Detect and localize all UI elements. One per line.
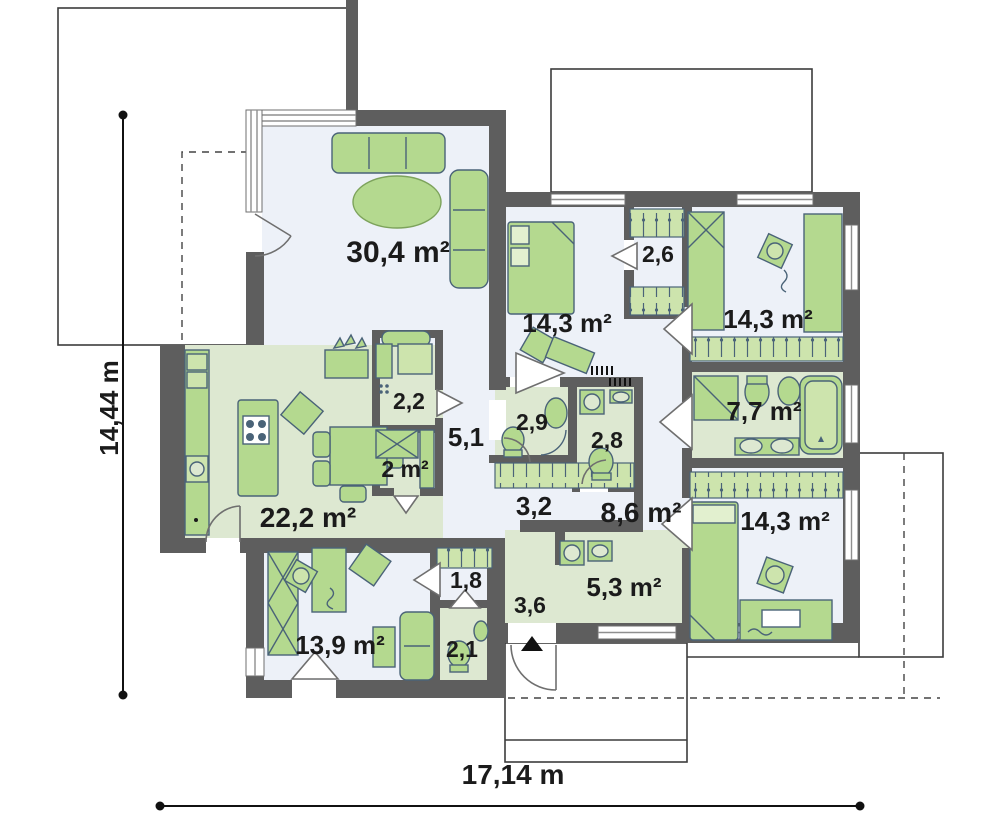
sofa [400,612,434,680]
wall [435,330,443,390]
wall [355,110,506,126]
label-bathroom-small: 2,9 [516,409,548,435]
label-closet: 2 m² [381,456,429,482]
terrace-right [859,453,943,657]
dimension-dot [156,802,165,811]
kitchen-island [238,400,278,496]
sink-icon [190,462,204,476]
kitchen-counter [185,350,209,535]
label-width-dimension: 17,14 m [462,759,565,790]
rug [353,176,441,228]
roof-edge-wall [346,0,358,112]
double-sink [735,438,799,455]
wardrobe-strip [630,209,684,237]
bed [690,502,738,640]
label-bedroom-top-right: 14,3 m² [723,304,813,334]
dimension-dot [856,802,865,811]
cooktop-icon [246,420,254,428]
floor-plan: 30,4 m² 14,3 m² 2,6 14,3 m² 2,2 5,1 2 m²… [0,0,1000,823]
wall [489,455,577,463]
desk [312,548,346,612]
label-height-dimension: 14,44 m [94,360,124,455]
terrace-door-opening [292,680,336,698]
entrance-porch [505,643,687,762]
label-wc-bottom: 2,1 [446,636,478,662]
wall [246,680,505,698]
label-hall-center: 5,1 [448,422,484,452]
label-pantry: 2,2 [393,388,425,414]
sink-icon [610,390,632,403]
label-bedroom-bottom-right: 14,3 m² [740,506,830,536]
label-utility: 5,3 m² [586,572,661,602]
wall [160,538,206,553]
wall [682,458,843,468]
kitchen-door-opening [206,538,240,553]
label-living-room: 30,4 m² [346,236,449,269]
desk [740,600,832,640]
bathtub-icon [800,376,842,454]
label-corridor: 3,2 [516,491,552,521]
bed [508,222,574,314]
chaise-lounge [450,170,488,288]
wardrobe-strip [690,337,843,361]
label-wardrobe-top: 2,6 [642,241,674,267]
label-hallway: 8,6 m² [601,497,682,528]
wall [372,488,394,496]
dimension-dot [119,691,128,700]
label-vestibule: 3,6 [514,592,546,618]
sink-icon [588,541,612,561]
label-wardrobe-bottom: 1,8 [450,567,482,593]
label-bathroom-main: 7,7 m² [726,396,801,426]
wall [160,345,185,538]
wall [489,207,506,390]
wall [246,252,264,345]
bed [688,212,724,330]
dimension-dot [119,111,128,120]
washing-machine-icon [580,390,604,414]
wardrobe-strip [437,548,492,568]
sink-icon [545,398,567,428]
wardrobe-strip [690,472,843,498]
wall [420,488,443,496]
sofa [332,133,445,173]
label-kitchen: 22,2 m² [260,502,357,533]
terrace-top-right [551,69,812,192]
floor-plan-drawing: 30,4 m² 14,3 m² 2,6 14,3 m² 2,2 5,1 2 m²… [0,0,1000,823]
wall [682,362,843,372]
wardrobe-strip [495,463,634,488]
label-bedroom-top-middle: 14,3 m² [522,308,612,338]
washing-machine-icon [560,541,584,565]
label-wc-middle: 2,8 [591,427,623,453]
label-room-bottom-left: 13,9 m² [295,630,385,660]
wardrobe-strip [630,287,684,315]
